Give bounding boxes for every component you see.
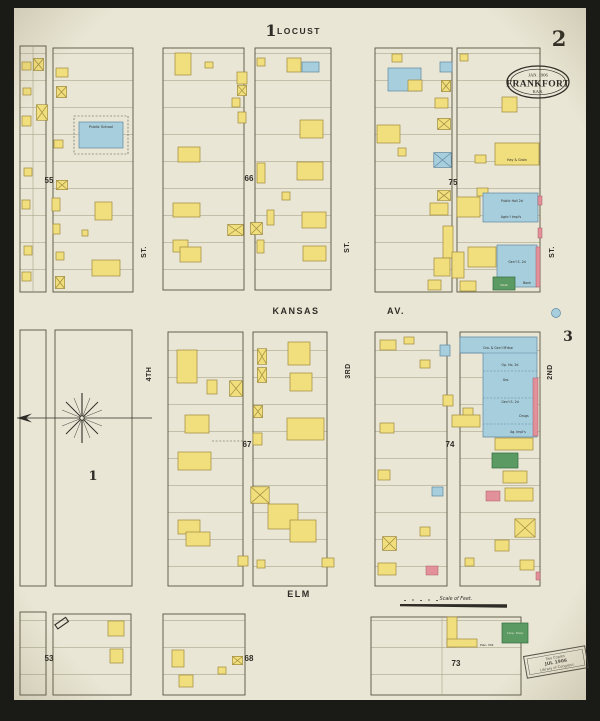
sanborn-map-page: Public School — [0, 0, 600, 721]
map-sheet-svg: Public School — [0, 0, 600, 721]
paper-vignette — [14, 8, 586, 700]
